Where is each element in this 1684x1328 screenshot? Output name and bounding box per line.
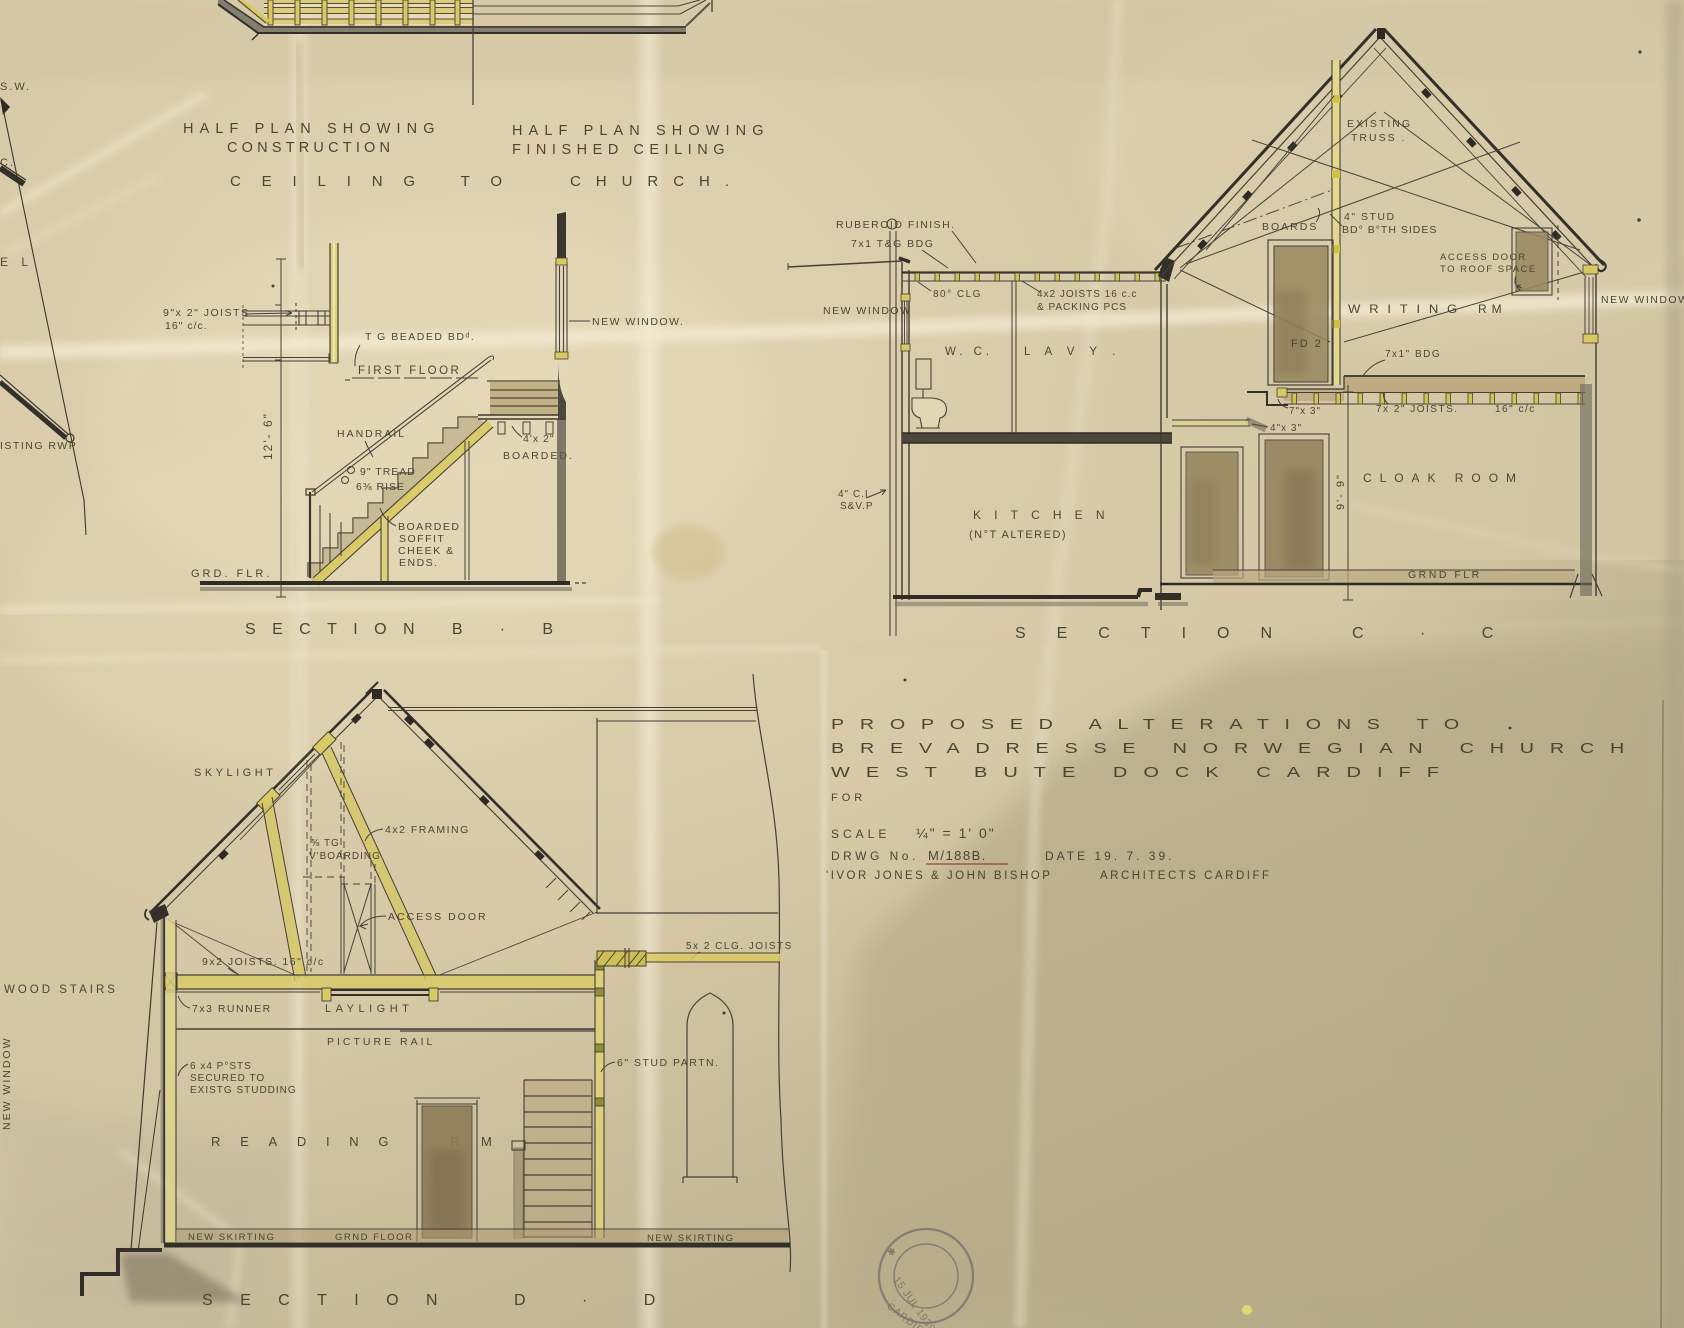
svg-text:7x1 T&G BDG: 7x1 T&G BDG xyxy=(851,238,934,250)
svg-text:E L: E L xyxy=(0,255,33,269)
svg-text:W. C.: W. C. xyxy=(945,346,993,358)
svg-text:GRND FLOOR: GRND FLOOR xyxy=(335,1232,413,1243)
svg-text:LAYLIGHT: LAYLIGHT xyxy=(325,1003,413,1015)
svg-text:TO ROOF SPACE: TO ROOF SPACE xyxy=(1440,264,1537,275)
svg-text:16" c/c.: 16" c/c. xyxy=(165,320,208,332)
svg-text:6" STUD PARTN.: 6" STUD PARTN. xyxy=(617,1057,720,1069)
svg-text:ARCHITECTS CARDIFF: ARCHITECTS CARDIFF xyxy=(1100,870,1272,882)
svg-text:BOARDS: BOARDS xyxy=(1262,221,1318,233)
svg-text:9x2 JOISTS. 16" c/c: 9x2 JOISTS. 16" c/c xyxy=(202,956,325,968)
svg-text:ENDS.: ENDS. xyxy=(399,557,439,569)
svg-text:FIRST FLOOR: FIRST FLOOR xyxy=(358,365,461,377)
svg-text:ACCESS DOOR: ACCESS DOOR xyxy=(388,911,488,923)
svg-text:NEW WINDOW: NEW WINDOW xyxy=(823,305,912,317)
svg-text:FD 2: FD 2 xyxy=(1291,338,1323,350)
svg-text:TRUSS .: TRUSS . xyxy=(1351,132,1406,144)
svg-text:4" C.I: 4" C.I xyxy=(838,489,869,500)
svg-text:9'- 9": 9'- 9" xyxy=(1335,473,1347,510)
svg-text:M/188B.: M/188B. xyxy=(928,848,987,863)
svg-text:L A V Y .: L A V Y . xyxy=(1024,346,1121,358)
svg-text:ISTING RWP: ISTING RWP xyxy=(0,440,77,452)
svg-text:16" c/c: 16" c/c xyxy=(1495,404,1536,415)
svg-text:RM: RM xyxy=(1478,302,1507,316)
svg-text:PROPOSED ALTERATIONS TO: PROPOSED ALTERATIONS TO xyxy=(831,716,1475,733)
svg-text:V'BOARDING: V'BOARDING xyxy=(309,851,381,862)
svg-text:CHEEK &: CHEEK & xyxy=(398,545,455,557)
svg-text:5x 2 CLG. JOISTS: 5x 2 CLG. JOISTS xyxy=(686,941,793,952)
svg-text:S&V.P: S&V.P xyxy=(840,501,874,512)
svg-text:BOARDED: BOARDED xyxy=(398,521,460,533)
svg-text:PICTURE RAIL: PICTURE RAIL xyxy=(327,1036,435,1048)
svg-text:¼" = 1' 0": ¼" = 1' 0" xyxy=(916,825,996,841)
svg-text:6 x4 P°STS: 6 x4 P°STS xyxy=(190,1061,252,1072)
svg-text:SECURED TO: SECURED TO xyxy=(190,1073,265,1084)
svg-text:FINISHED CEILING: FINISHED CEILING xyxy=(512,142,732,158)
svg-text:SCALE: SCALE xyxy=(831,827,890,841)
svg-text:FOR: FOR xyxy=(831,792,866,804)
svg-text:S.W.: S.W. xyxy=(0,81,31,93)
svg-text:9" TREAD: 9" TREAD xyxy=(360,466,416,478)
svg-text:HALF PLAN SHOWING: HALF PLAN SHOWING xyxy=(183,121,443,137)
svg-text:WRITING: WRITING xyxy=(1348,302,1466,316)
svg-text:CLOAK ROOM: CLOAK ROOM xyxy=(1363,471,1523,485)
svg-text:7"x 3": 7"x 3" xyxy=(1289,406,1321,417)
svg-text:GRND FLR: GRND FLR xyxy=(1408,569,1482,581)
svg-text:EXISTING: EXISTING xyxy=(1347,118,1412,130)
svg-text:7x3 RUNNER: 7x3 RUNNER xyxy=(192,1003,272,1015)
svg-text:GRD. FLR.: GRD. FLR. xyxy=(191,568,272,580)
svg-text:WEST BUTE DOCK CARDIFF: WEST BUTE DOCK CARDIFF xyxy=(831,764,1455,781)
svg-text:CHURCH.: CHURCH. xyxy=(570,173,740,190)
svg-text:T G BEADED BDᵈ.: T G BEADED BDᵈ. xyxy=(365,331,475,343)
svg-text:4x2 FRAMING: 4x2 FRAMING xyxy=(385,824,470,836)
svg-text:7x 2" JOISTS.: 7x 2" JOISTS. xyxy=(1376,404,1459,415)
svg-text:C · C: C · C xyxy=(1352,625,1519,642)
svg-text:CONSTRUCTION: CONSTRUCTION xyxy=(227,140,397,156)
svg-text:DATE 19. 7. 39.: DATE 19. 7. 39. xyxy=(1045,849,1175,863)
svg-text:9"x 2" JOISTS: 9"x 2" JOISTS xyxy=(163,307,249,319)
svg-text:(N°T ALTERED): (N°T ALTERED) xyxy=(969,529,1067,541)
svg-text:WOOD STAIRS: WOOD STAIRS xyxy=(4,984,118,996)
svg-text:BD° B°TH SIDES: BD° B°TH SIDES xyxy=(1342,224,1437,236)
svg-text:& PACKING PCS: & PACKING PCS xyxy=(1037,302,1127,313)
svg-text:4'x 2": 4'x 2" xyxy=(523,433,555,445)
svg-text:CEILING TO: CEILING TO xyxy=(230,173,515,190)
svg-text:EXISTG STUDDING: EXISTG STUDDING xyxy=(190,1085,297,1096)
svg-text:NEW WINDOW: NEW WINDOW xyxy=(1601,294,1684,306)
svg-text:SKYLIGHT: SKYLIGHT xyxy=(194,767,276,779)
svg-text:12'- 6": 12'- 6" xyxy=(261,412,275,460)
svg-text:6⅜ RISE: 6⅜ RISE xyxy=(356,481,405,493)
svg-text:80° CLG: 80° CLG xyxy=(933,289,982,300)
svg-text:ACCESS DOOR: ACCESS DOOR xyxy=(1440,252,1527,263)
svg-text:NEW SKIRTING: NEW SKIRTING xyxy=(188,1232,276,1243)
svg-text:NEW SKIRTING: NEW SKIRTING xyxy=(647,1233,735,1244)
svg-text:⅝ TG: ⅝ TG xyxy=(311,838,340,849)
svg-text:D · D: D · D xyxy=(514,1292,681,1309)
svg-text:SECTION B · B: SECTION B · B xyxy=(245,621,565,638)
svg-text:NEW WINDOW.: NEW WINDOW. xyxy=(592,316,684,328)
svg-text:DRWG No.: DRWG No. xyxy=(831,849,919,863)
svg-text:7x1" BDG: 7x1" BDG xyxy=(1385,349,1441,360)
svg-text:4" STUD: 4" STUD xyxy=(1344,211,1396,223)
svg-text:4x2 JOISTS 16 c.c: 4x2 JOISTS 16 c.c xyxy=(1037,289,1137,300)
svg-text:HANDRAIL: HANDRAIL xyxy=(337,428,406,440)
svg-text:4"x 3": 4"x 3" xyxy=(1270,423,1302,434)
svg-text:C.: C. xyxy=(0,157,15,169)
svg-text:NEW WINDOW: NEW WINDOW xyxy=(1,1037,13,1131)
svg-text:'IVOR JONES & JOHN BISHOP: 'IVOR JONES & JOHN BISHOP xyxy=(826,870,1052,882)
svg-text:BREVADRESSE NORWEGIAN CHURCH: BREVADRESSE NORWEGIAN CHURCH xyxy=(831,740,1640,757)
svg-text:HALF PLAN SHOWING: HALF PLAN SHOWING xyxy=(512,123,772,139)
svg-text:SOFFIT: SOFFIT xyxy=(399,533,445,545)
svg-text:RUBEROID FINISH.: RUBEROID FINISH. xyxy=(836,219,956,231)
